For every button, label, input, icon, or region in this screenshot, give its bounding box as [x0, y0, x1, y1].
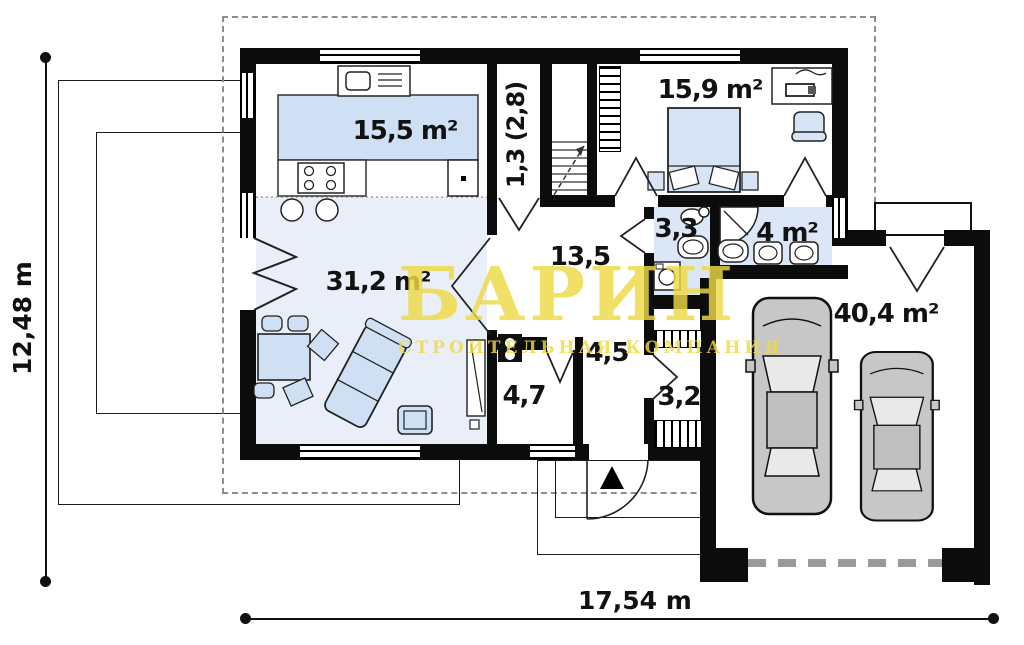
wall — [644, 398, 654, 444]
wall — [240, 118, 256, 193]
porch-outline-inner — [555, 460, 702, 518]
window — [300, 444, 420, 460]
room-label-kitchen: 15,5 m² — [353, 116, 458, 146]
room-label-bath: 4 m² — [756, 218, 818, 248]
room-label-wc: 3,3 — [654, 214, 697, 244]
room-label-garage: 40,4 m² — [834, 299, 939, 329]
wall — [644, 295, 716, 309]
wall — [832, 48, 848, 198]
dimension-width-label: 17,54 m — [578, 586, 692, 615]
wall — [575, 444, 589, 460]
wall — [942, 548, 990, 582]
dimension-height-label: 12,48 m — [8, 261, 37, 375]
room-label-stairhall: 1,3 (2,8) — [502, 82, 530, 188]
wall — [487, 64, 497, 200]
wall — [700, 278, 716, 553]
wall — [575, 337, 583, 350]
wardrobe-symbol — [654, 420, 702, 448]
window — [320, 48, 420, 64]
window — [640, 48, 740, 64]
room-label-hall: 13,5 — [550, 242, 610, 272]
wardrobe-symbol — [654, 330, 702, 348]
wall — [487, 200, 497, 235]
wall — [587, 64, 597, 200]
wall — [240, 310, 256, 460]
living-room-floor — [256, 197, 487, 444]
garage-floor — [700, 230, 990, 585]
window — [832, 198, 848, 238]
wall — [540, 195, 615, 207]
wall — [420, 444, 530, 460]
wall — [710, 207, 720, 265]
wall — [573, 350, 583, 444]
wall — [848, 230, 886, 246]
dimension-dot — [40, 576, 51, 587]
room-label-corridor: 4,5 — [585, 338, 628, 368]
wall — [240, 444, 300, 460]
wall — [420, 48, 640, 64]
window — [240, 73, 256, 118]
room-label-bedroom: 15,9 m² — [658, 75, 763, 105]
wall — [540, 64, 552, 197]
dimension-line-horizontal — [245, 618, 993, 620]
room-label-utility: 4,7 — [502, 381, 545, 411]
dimension-dot — [40, 52, 51, 63]
dimension-dot — [240, 613, 251, 624]
wardrobe-symbol — [599, 66, 621, 152]
wall — [644, 309, 654, 355]
window — [530, 444, 575, 460]
dimension-dot — [988, 613, 999, 624]
wall — [240, 48, 256, 73]
wall — [658, 195, 784, 207]
wall — [710, 265, 848, 279]
wall — [974, 230, 990, 585]
wall — [700, 548, 748, 582]
window — [240, 193, 256, 238]
wall — [832, 238, 848, 246]
wall — [487, 337, 547, 350]
wall — [644, 207, 654, 219]
dimension-line-vertical — [45, 57, 47, 582]
floor-plan: 12,48 m 17,54 m — [0, 0, 1024, 645]
room-label-entry: 3,2 — [657, 382, 700, 412]
room-label-living: 31,2 m² — [326, 267, 431, 297]
